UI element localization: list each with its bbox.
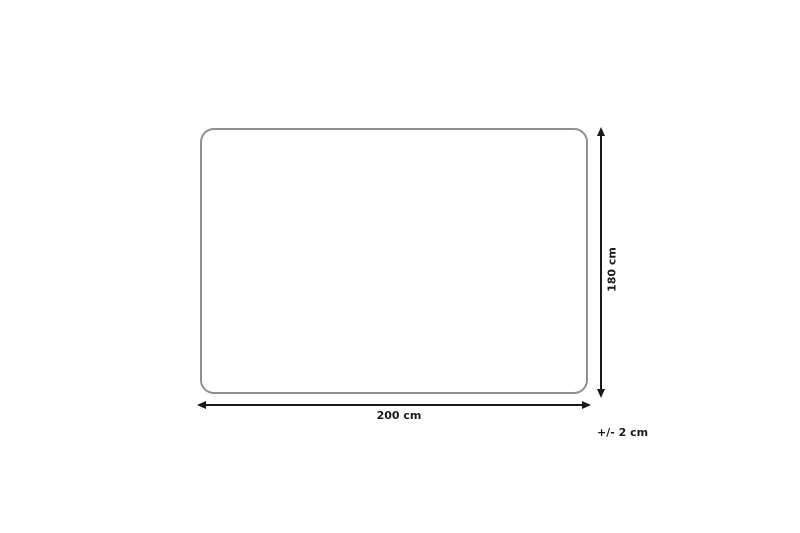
arrow-left-icon bbox=[197, 401, 206, 409]
product-outline bbox=[200, 128, 588, 394]
height-dimension-label: 180 cm bbox=[606, 220, 619, 320]
height-dimension-line bbox=[600, 134, 602, 391]
tolerance-label: +/- 2 cm bbox=[597, 426, 648, 439]
arrow-up-icon bbox=[597, 127, 605, 136]
arrow-down-icon bbox=[597, 389, 605, 398]
width-dimension-line bbox=[204, 404, 584, 406]
width-dimension-label: 200 cm bbox=[349, 409, 449, 422]
arrow-right-icon bbox=[582, 401, 591, 409]
dimension-diagram: 180 cm 200 cm +/- 2 cm bbox=[0, 0, 800, 533]
